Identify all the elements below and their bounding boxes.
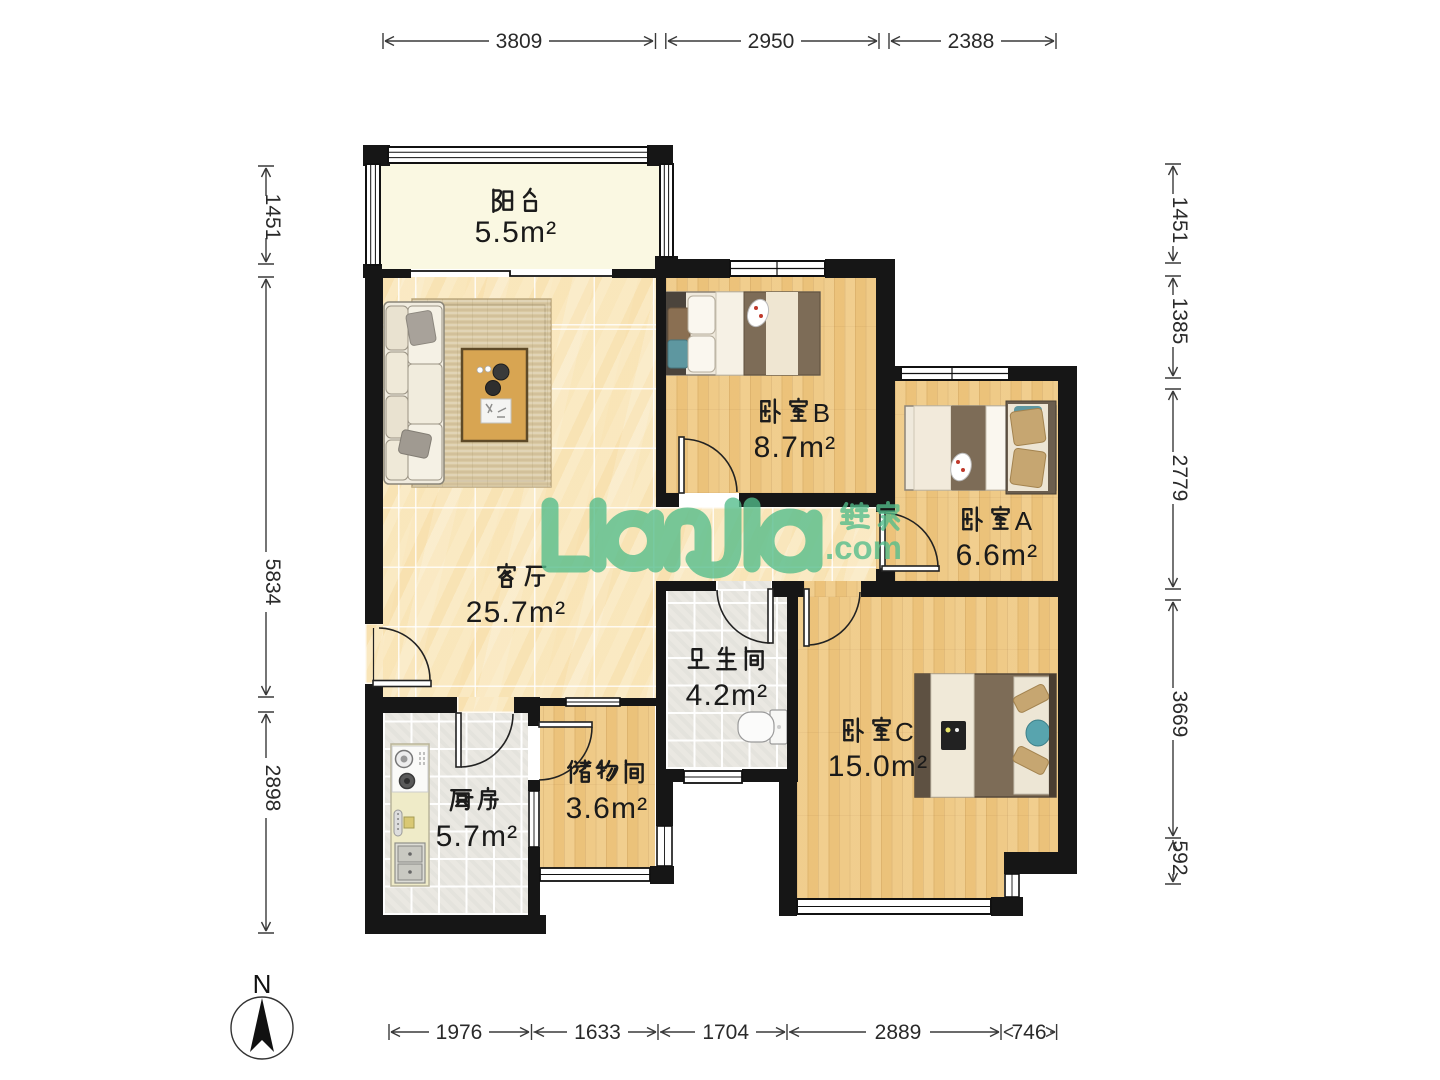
svg-text:4.2m²: 4.2m²	[686, 679, 769, 712]
svg-text:5.5m²: 5.5m²	[475, 216, 558, 249]
svg-text:.com: .com	[825, 529, 902, 566]
svg-text:1451: 1451	[1168, 197, 1191, 244]
svg-text:1451: 1451	[261, 194, 284, 241]
svg-text:2889: 2889	[875, 1021, 922, 1044]
svg-text:5834: 5834	[261, 559, 284, 606]
svg-text:2898: 2898	[261, 765, 284, 812]
svg-text:1976: 1976	[436, 1021, 483, 1044]
svg-text:5.7m²: 5.7m²	[436, 820, 519, 853]
svg-text:592: 592	[1168, 840, 1191, 875]
svg-text:15.0m²: 15.0m²	[828, 750, 929, 783]
svg-text:8.7m²: 8.7m²	[754, 431, 837, 464]
svg-text:746: 746	[1011, 1021, 1046, 1044]
svg-text:1385: 1385	[1168, 298, 1191, 345]
svg-text:3809: 3809	[496, 30, 543, 53]
svg-text:2950: 2950	[748, 30, 795, 53]
svg-text:3669: 3669	[1168, 691, 1191, 738]
svg-text:B: B	[813, 398, 832, 428]
svg-text:25.7m²: 25.7m²	[466, 596, 567, 629]
svg-text:N: N	[253, 969, 272, 999]
svg-text:6.6m²: 6.6m²	[956, 539, 1039, 572]
svg-text:1633: 1633	[574, 1021, 621, 1044]
svg-text:3.6m²: 3.6m²	[566, 792, 649, 825]
svg-text:A: A	[1015, 506, 1034, 536]
svg-text:2779: 2779	[1168, 455, 1191, 502]
svg-text:2388: 2388	[948, 30, 995, 53]
svg-text:1704: 1704	[702, 1021, 749, 1044]
svg-text:C: C	[895, 717, 915, 747]
